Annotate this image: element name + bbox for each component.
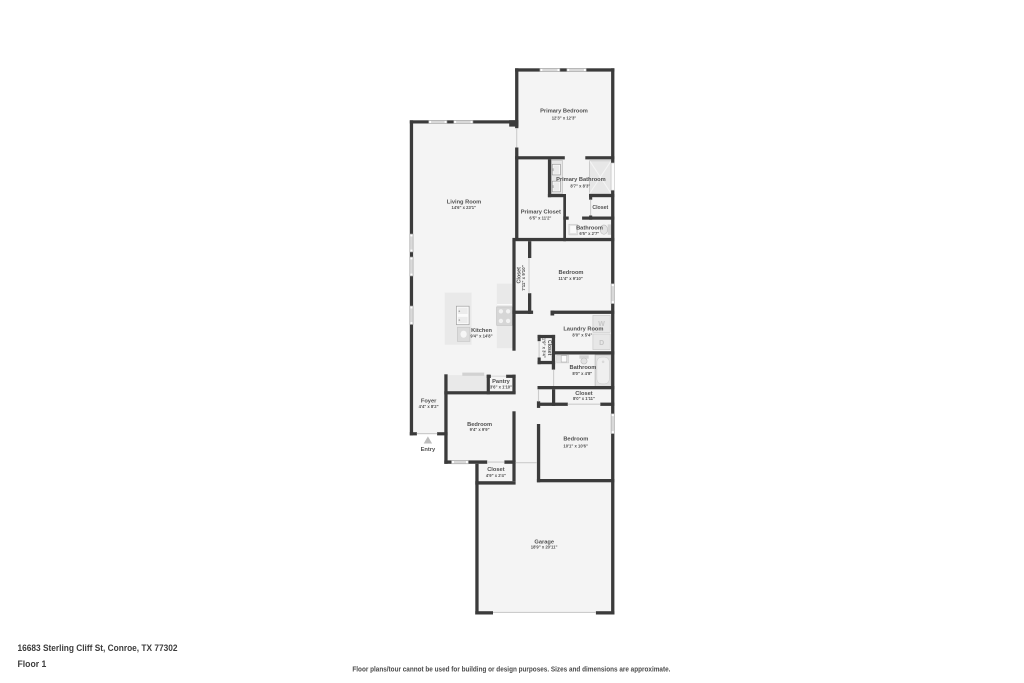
svg-text:6'5" x 11'2": 6'5" x 11'2" bbox=[529, 216, 551, 221]
svg-text:4'9" x 2'4": 4'9" x 2'4" bbox=[486, 473, 506, 478]
svg-text:9'4" x 9'9": 9'4" x 9'9" bbox=[470, 427, 490, 432]
svg-text:18'9" x 20'11": 18'9" x 20'11" bbox=[531, 544, 558, 549]
svg-text:3'6" x 1'10": 3'6" x 1'10" bbox=[490, 384, 512, 389]
svg-text:Entry: Entry bbox=[421, 447, 436, 453]
svg-text:Closet: Closet bbox=[592, 205, 608, 211]
svg-text:8'0" x 4'8": 8'0" x 4'8" bbox=[572, 371, 592, 376]
svg-text:14'6" x 23'1": 14'6" x 23'1" bbox=[452, 205, 477, 210]
svg-text:9'4" x 14'8": 9'4" x 14'8" bbox=[470, 334, 492, 339]
svg-text:16683 Sterling Cliff St, Conro: 16683 Sterling Cliff St, Conroe, TX 7730… bbox=[18, 642, 178, 653]
svg-text:7'11" x 9'10": 7'11" x 9'10" bbox=[521, 265, 526, 291]
svg-text:6'5" x 2'7": 6'5" x 2'7" bbox=[579, 231, 599, 236]
svg-text:12'3" x 12'3": 12'3" x 12'3" bbox=[552, 115, 577, 120]
svg-text:Floor 1: Floor 1 bbox=[18, 658, 47, 669]
svg-text:8'0" x 5'4": 8'0" x 5'4" bbox=[572, 333, 592, 338]
svg-text:10'1" x 10'6": 10'1" x 10'6" bbox=[563, 443, 588, 448]
svg-text:Primary Bedroom: Primary Bedroom bbox=[540, 108, 588, 114]
svg-text:1'9" x 3'4": 1'9" x 3'4" bbox=[541, 338, 546, 358]
svg-text:Primary Bathroom: Primary Bathroom bbox=[556, 177, 606, 183]
svg-text:11'4" x 9'10": 11'4" x 9'10" bbox=[558, 276, 582, 281]
svg-text:Bedroom: Bedroom bbox=[563, 437, 588, 443]
svg-text:8'0" x 1'11": 8'0" x 1'11" bbox=[573, 396, 595, 401]
svg-text:D: D bbox=[599, 340, 604, 347]
svg-text:Floor plans/tour cannot be use: Floor plans/tour cannot be used for buil… bbox=[352, 666, 670, 673]
svg-text:8'7" x 8'3": 8'7" x 8'3" bbox=[570, 184, 590, 189]
svg-text:4'4" x 8'2": 4'4" x 8'2" bbox=[419, 404, 439, 409]
